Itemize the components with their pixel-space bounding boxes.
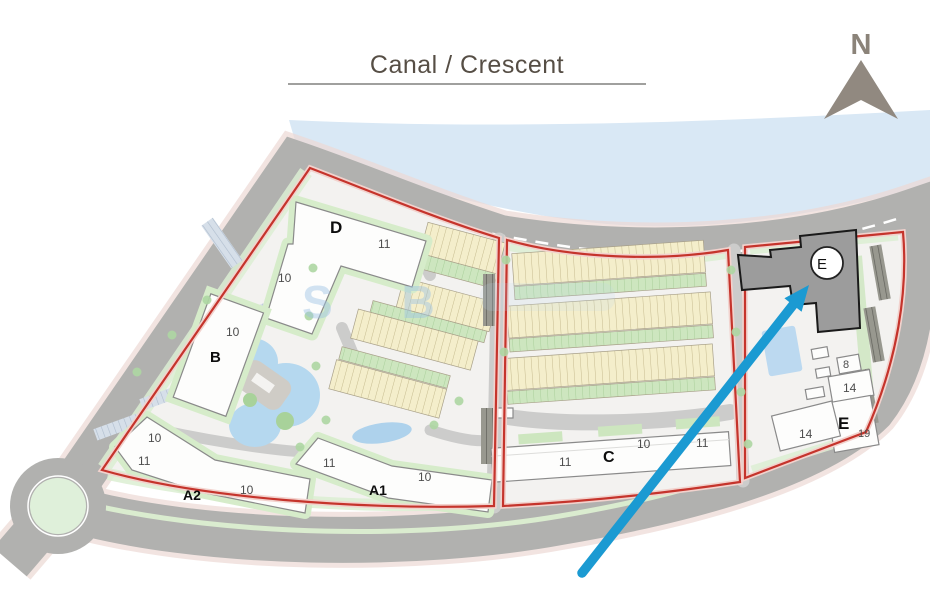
title-block: Canal / Crescent [288,51,646,84]
label-e-14u: 14 [843,381,857,395]
label-c-11e: 11 [696,436,709,450]
label-a1-11: 11 [323,456,336,470]
label-a1-10: 10 [418,470,432,484]
lake-island-2 [276,412,294,430]
label-d-11: 11 [378,237,391,251]
label-c: C [603,449,615,466]
label-e-lowrise: E [838,414,849,433]
label-a2-10t: 10 [148,431,162,445]
lake-island-1 [243,393,257,407]
amenity-1 [811,347,828,360]
site-plan-page: S B D 11 10 B 10 A2 10 11 10 A1 11 10 C … [0,0,930,606]
townhouse-rows-middle [505,240,716,404]
watermark-smudge [480,283,615,311]
label-e-14l: 14 [799,427,813,441]
compass: N [824,29,898,119]
label-a2-11: 11 [138,454,151,468]
label-e-badge: E [817,256,827,273]
label-d: D [330,218,342,237]
label-b-10: 10 [226,325,240,339]
watermark-text: S B [302,276,463,328]
roundabout [10,458,106,554]
label-e-19: 19 [858,428,870,440]
label-a1: A1 [369,482,387,498]
label-d-10: 10 [278,271,292,285]
label-a2-10e: 10 [240,483,254,497]
compass-label: N [851,29,872,61]
compass-arrow-icon [824,60,898,119]
label-e-8: 8 [843,359,849,371]
site-plan-svg: S B D 11 10 B 10 A2 10 11 10 A1 11 10 C … [0,0,930,606]
page-title: Canal / Crescent [370,51,564,79]
label-b: B [210,349,221,366]
label-a2: A2 [183,487,201,503]
roundabout-green [30,478,86,534]
label-c-11w: 11 [559,455,572,469]
label-c-10: 10 [637,437,651,451]
